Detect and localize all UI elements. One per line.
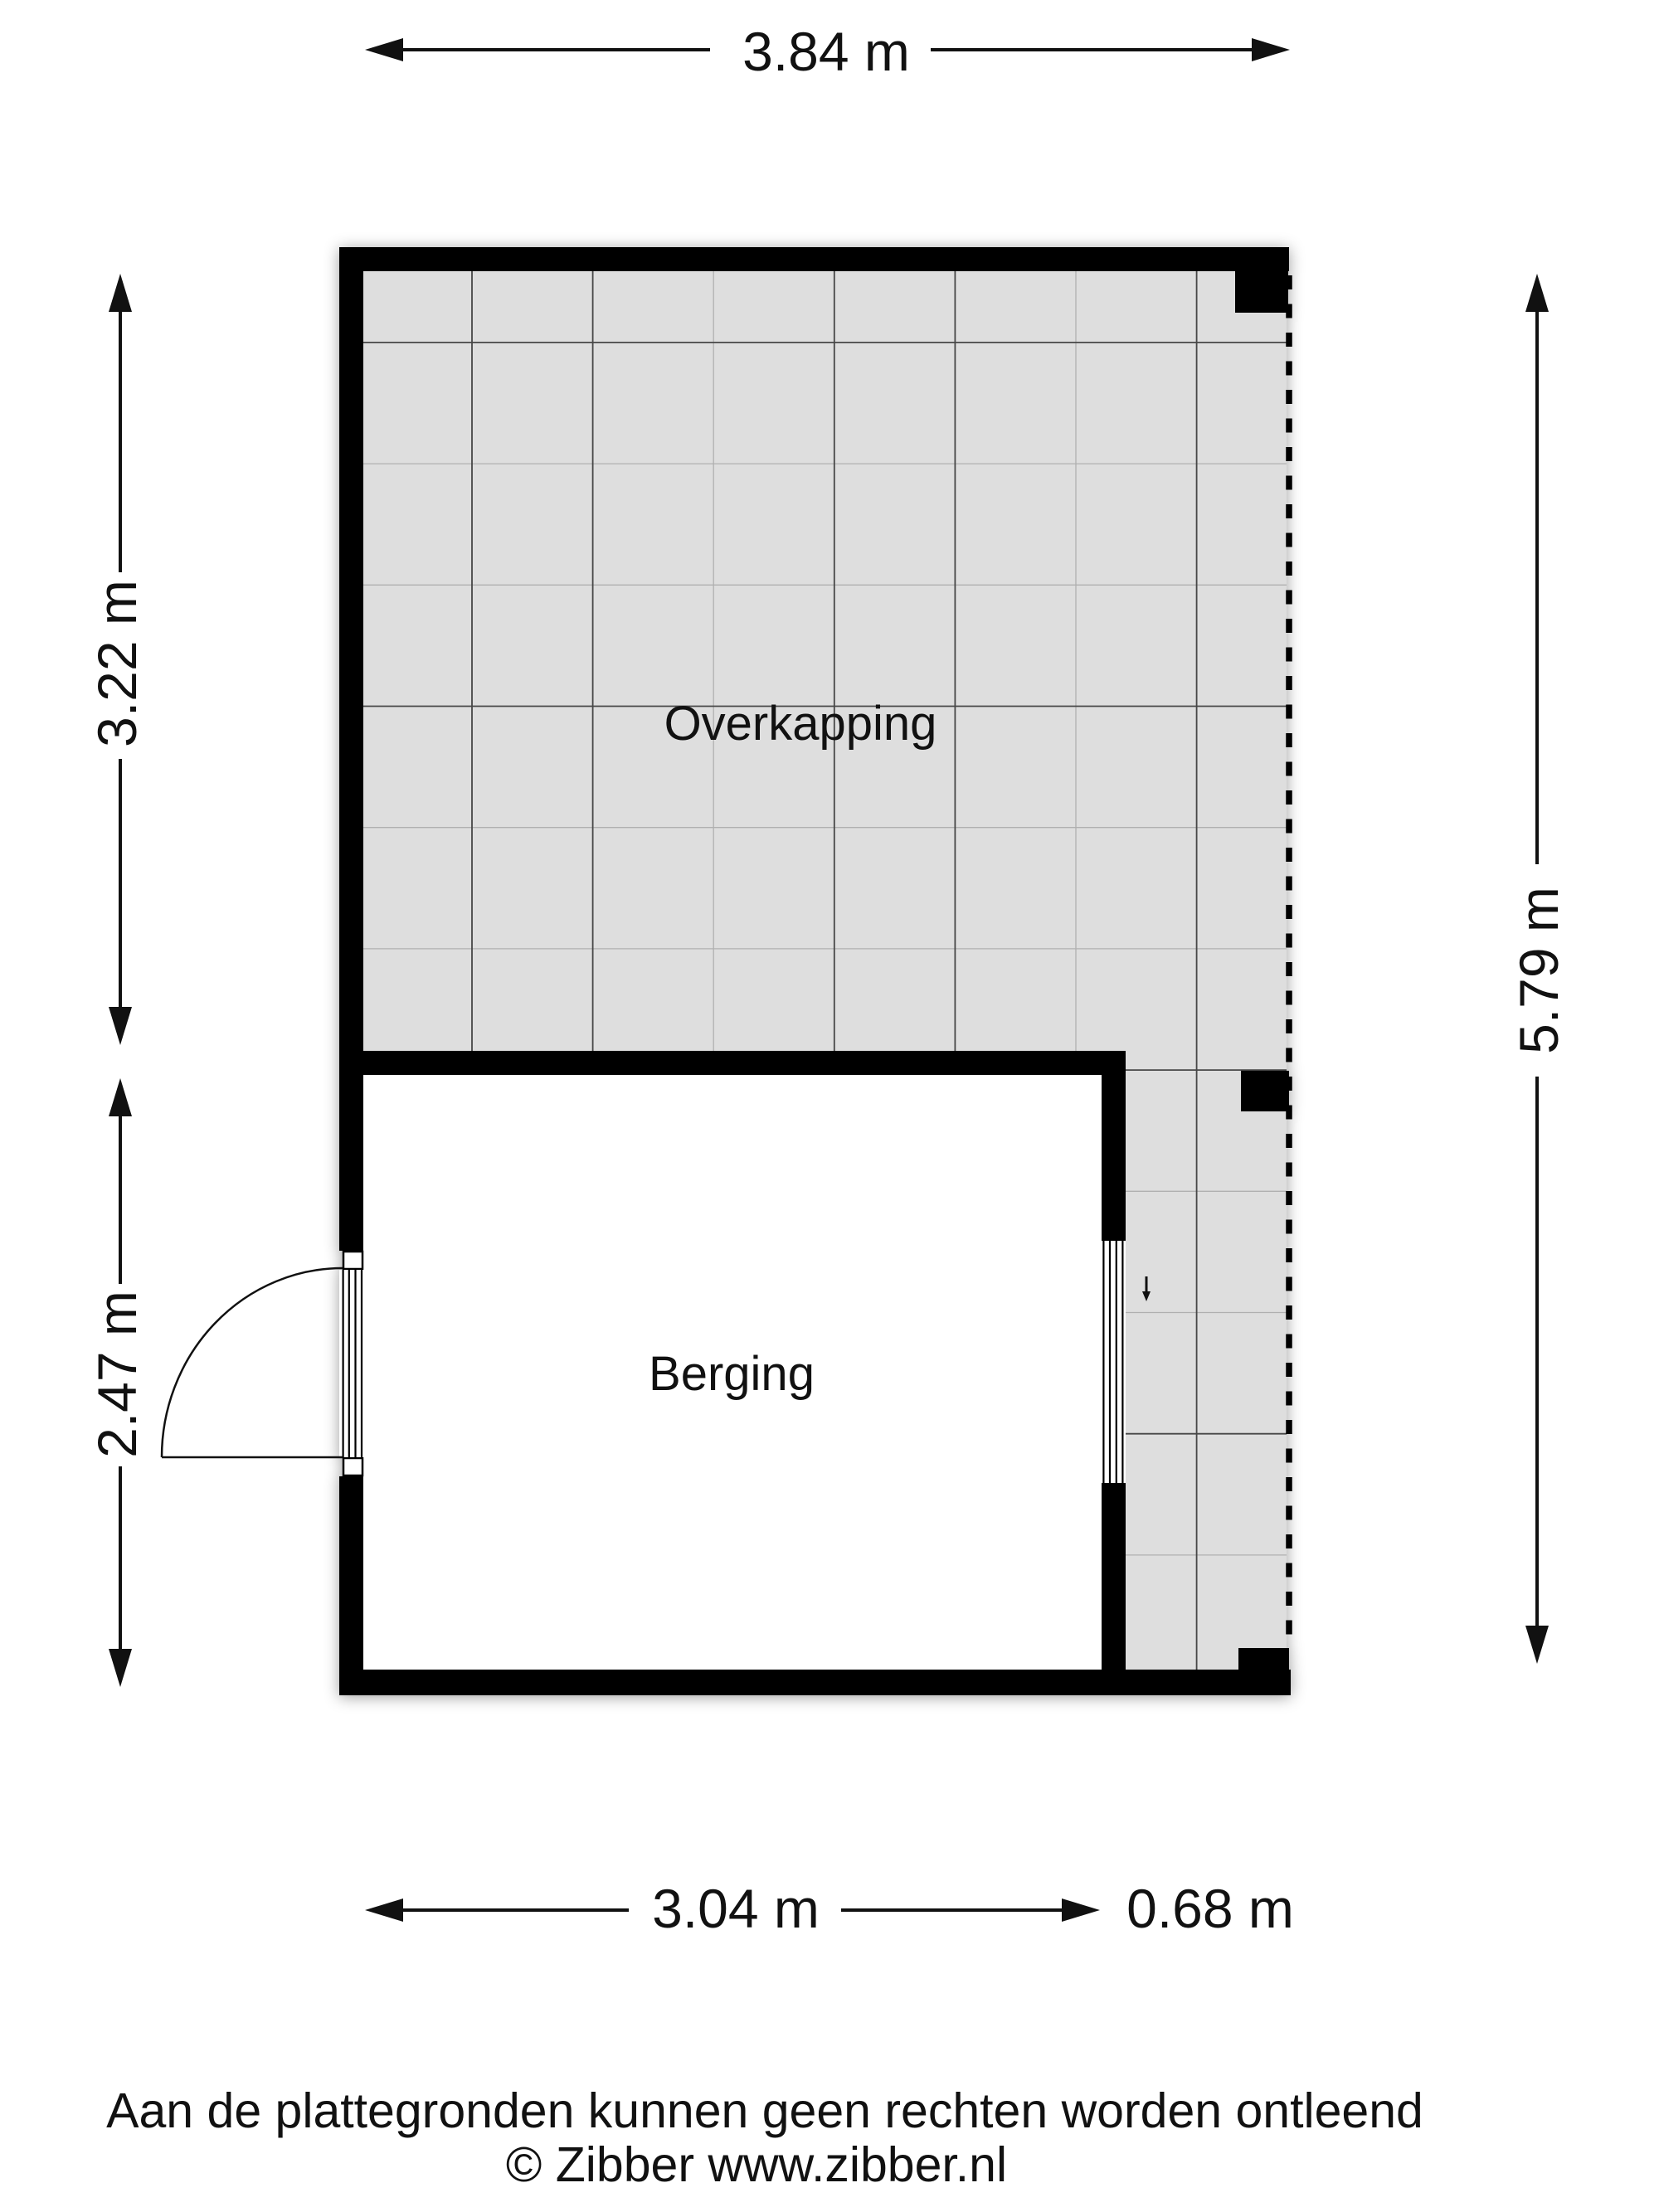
svg-text:3.04 m: 3.04 m: [652, 1878, 820, 1939]
svg-text:Berging: Berging: [649, 1347, 815, 1401]
svg-text:Aan de plattegronden kunnen ge: Aan de plattegronden kunnen geen rechten…: [106, 2083, 1423, 2138]
svg-text:© Zibber www.zibber.nl: © Zibber www.zibber.nl: [506, 2137, 1007, 2192]
svg-text:Overkapping: Overkapping: [664, 697, 937, 751]
svg-text:3.22 m: 3.22 m: [86, 580, 148, 747]
svg-text:2.47 m: 2.47 m: [86, 1291, 148, 1458]
svg-text:5.79 m: 5.79 m: [1508, 887, 1569, 1054]
svg-text:0.68 m: 0.68 m: [1126, 1878, 1294, 1939]
svg-text:3.84 m: 3.84 m: [742, 21, 910, 82]
